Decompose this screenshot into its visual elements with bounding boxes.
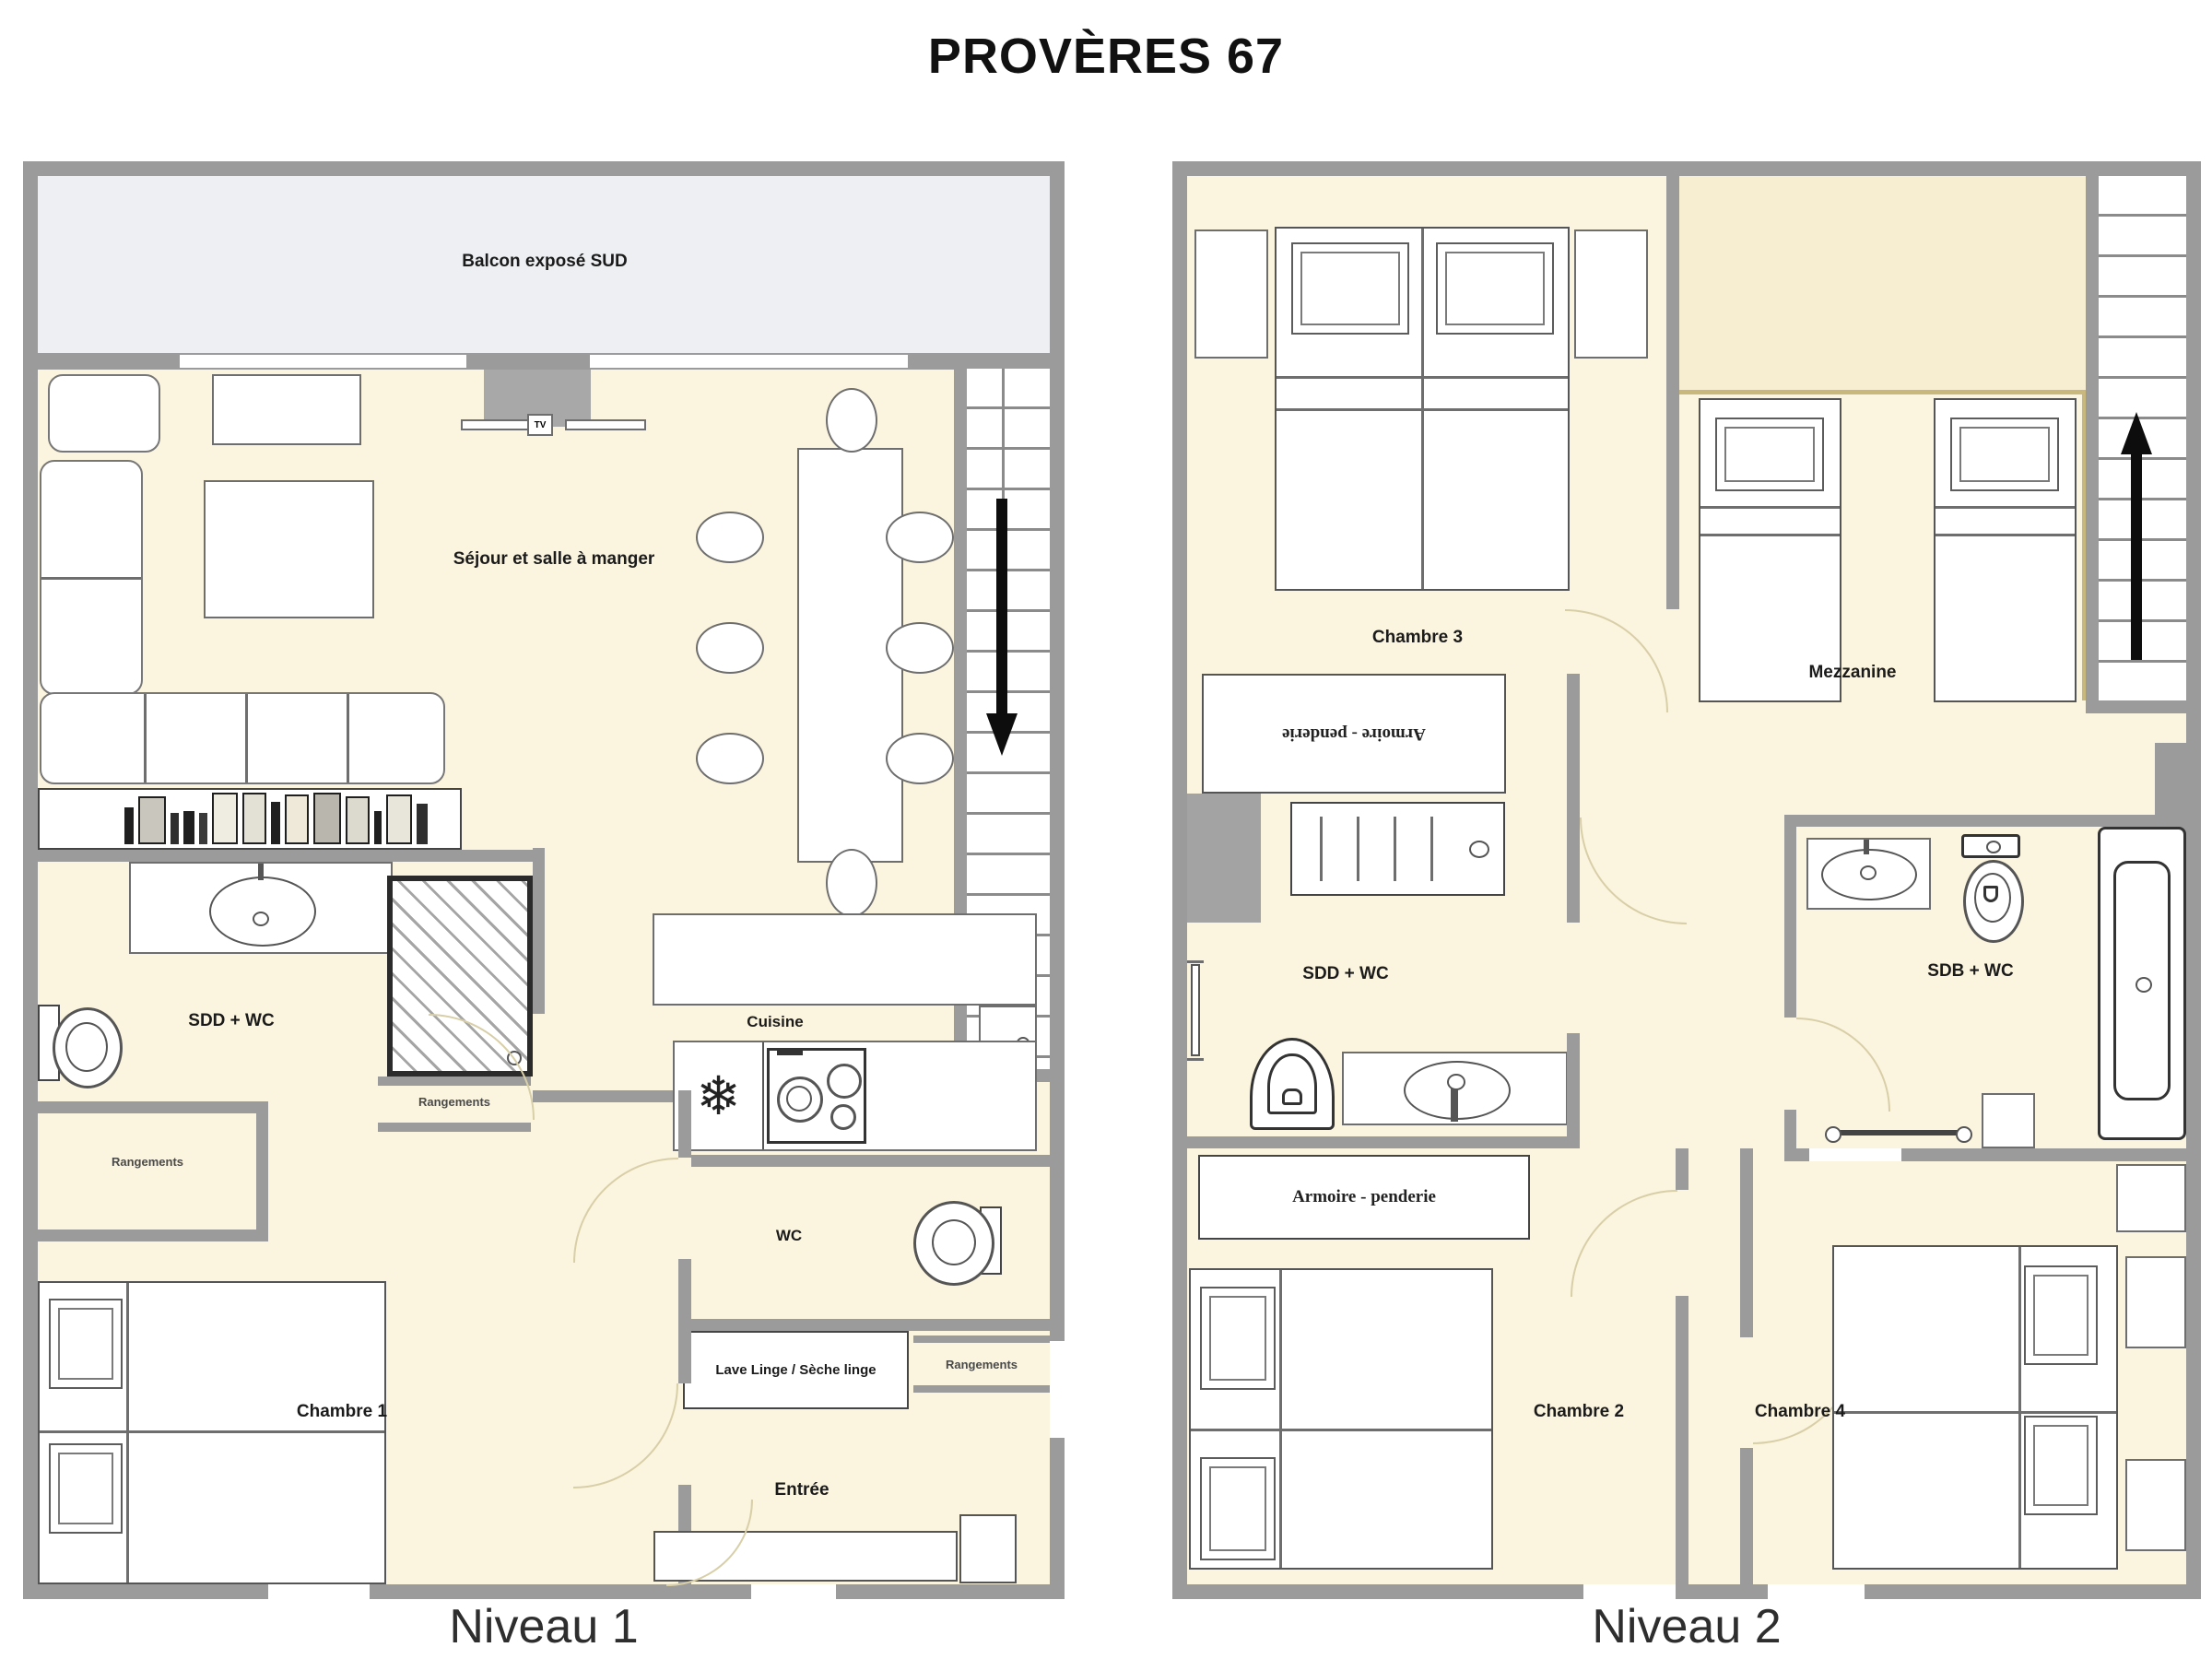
kitchen-counter: [653, 913, 1037, 1006]
sink-drain-icon: [1860, 865, 1877, 880]
sink-tap-icon: [1451, 1085, 1458, 1122]
book: [242, 793, 266, 844]
book: [212, 793, 238, 844]
entry-cabinet: [959, 1514, 1017, 1583]
book: [313, 793, 341, 844]
bed-sheet-line: [1700, 534, 1840, 536]
dining-chair: [696, 622, 764, 674]
book: [386, 794, 412, 844]
armchair: [48, 374, 160, 453]
bedroom3-wall: [1666, 176, 1679, 609]
room-wall: [1567, 1033, 1580, 1148]
page-title: PROVÈRES 67: [0, 28, 2212, 85]
storage-entry-label: Rangements: [913, 1358, 1050, 1371]
dining-chair-end: [826, 388, 877, 453]
bedroom1-label: Chambre 1: [250, 1402, 434, 1423]
sdb-label: SDB + WC: [1878, 961, 2063, 982]
sdb-left-wall: [1784, 827, 1796, 1018]
shelf-unit: [2116, 1164, 2186, 1232]
hall-wall: [533, 1090, 691, 1102]
bed-sheet-line: [1935, 534, 2075, 536]
book: [374, 811, 382, 844]
bathroom-top-wall: [38, 850, 543, 862]
tv-icon: TV: [527, 414, 553, 436]
bedside-unit: [1574, 229, 1648, 359]
sofa-cushion-divider: [41, 577, 141, 580]
towel-rail-icon: [1832, 1130, 1961, 1135]
wc-bottom-wall: [691, 1319, 1050, 1331]
stove-icon: [767, 1048, 866, 1144]
book: [271, 802, 280, 844]
toilet-button: [1986, 841, 2001, 853]
storage-wall: [38, 1101, 268, 1113]
mezzanine-edge: [1679, 390, 2086, 394]
window-bay-left: [180, 355, 466, 368]
radiator-icon: [1191, 964, 1200, 1056]
wc-top-wall: [691, 1155, 1050, 1167]
niche-wall: [378, 1123, 531, 1132]
bathroom-label: SDD + WC: [139, 1011, 324, 1032]
bedroom3-label: Chambre 3: [1325, 628, 1510, 649]
niche-wall: [913, 1385, 1050, 1393]
bedroom4-label: Chambre 4: [1726, 1402, 1874, 1423]
shower-line: [1320, 817, 1323, 881]
burner-icon: [830, 1104, 856, 1130]
bed-sheet-line: [1935, 506, 2075, 509]
door-gap: [1768, 1584, 1865, 1599]
kitchen-appliance-counter: ❄: [673, 1041, 1037, 1151]
niveau1-caption: Niveau 1: [23, 1599, 1065, 1654]
bedside-unit: [1194, 229, 1268, 359]
corridor-wall: [1676, 1296, 1688, 1584]
shower-drain-icon: [1469, 841, 1489, 858]
sink-tap-icon: [1864, 840, 1869, 854]
dining-chair-end: [826, 849, 877, 917]
book: [346, 796, 370, 844]
window-bay-right: [590, 355, 908, 368]
bedside-unit: [2125, 1256, 2186, 1348]
rail-end: [1956, 1126, 1972, 1143]
pillow-icon: [1436, 242, 1554, 335]
pillow-icon: [1200, 1287, 1276, 1390]
stove-panel: [777, 1048, 803, 1055]
kitchen-label: Cuisine: [683, 1013, 867, 1031]
radiator-cap: [1187, 960, 1204, 963]
bathroom-vanity: [1806, 838, 1931, 910]
toilet-inner: [1267, 1053, 1317, 1114]
book: [183, 811, 194, 844]
door-gap: [1809, 1148, 1901, 1161]
pillow-icon: [1200, 1457, 1276, 1560]
dining-chair: [886, 622, 954, 674]
bed-line: [1279, 1270, 1282, 1568]
room-wall: [1187, 1136, 1580, 1148]
plan-niveau-2: Chambre 3 Armoire - penderie SDD + WC: [1172, 161, 2201, 1599]
pillow-icon: [2024, 1416, 2098, 1515]
window-gap: [268, 1584, 370, 1599]
mezzanine-label: Mezzanine: [1760, 663, 1945, 684]
plan-niveau-1: Balcon exposé SUD TV Séjour et salle à m…: [23, 161, 1065, 1599]
pillow-icon: [49, 1299, 123, 1389]
burner-icon: [786, 1086, 812, 1112]
mezzanine-upper-floor: [1679, 176, 2086, 394]
wardrobe-upper-label: Armoire - penderie: [1202, 674, 1506, 794]
bed-split: [40, 1430, 384, 1433]
sofa-cushion-divider: [347, 694, 349, 782]
toilet-flush: [1282, 1088, 1302, 1105]
storage-wall: [38, 1230, 268, 1241]
bed-sheet-line: [1277, 408, 1568, 411]
pillow-icon: [1715, 418, 1824, 491]
toilet-icon: [1250, 1038, 1335, 1130]
door-arc: [1796, 1018, 1890, 1112]
bathroom-vanity: [129, 862, 393, 954]
floorplan-canvas: PROVÈRES 67 Balcon exposé SUD TV Séjour …: [0, 0, 2212, 1659]
bookshelf: [38, 788, 462, 850]
bathtub-icon: [2098, 827, 2186, 1140]
sofa-bottom-section: [40, 692, 445, 784]
book: [417, 804, 428, 844]
book: [124, 807, 134, 844]
coffee-table: [204, 480, 374, 618]
front-door-gap: [751, 1584, 836, 1599]
dining-chair: [886, 512, 954, 563]
pillow-icon: [1950, 418, 2059, 491]
sink-drain-icon: [1447, 1074, 1465, 1090]
door-arc: [573, 1158, 678, 1263]
stairs-down-arrowhead: [986, 713, 1018, 756]
dining-chair: [696, 733, 764, 784]
sofa-cushion-divider: [245, 694, 248, 782]
shower-line: [1430, 817, 1433, 881]
sdb-top-wall: [1784, 815, 2186, 827]
tv-stand-right: [565, 419, 646, 430]
console-table: [212, 374, 361, 445]
toilet-tank-icon: [1961, 834, 2020, 858]
book: [285, 794, 309, 844]
corridor-wall: [678, 1090, 691, 1158]
book: [199, 813, 207, 844]
stairs-down-arrow: [996, 499, 1007, 715]
pillow-icon: [49, 1443, 123, 1534]
dining-chair: [696, 512, 764, 563]
shower-tray: [1290, 802, 1505, 896]
bed-sheet-line: [1700, 506, 1840, 509]
storage-wall: [256, 1101, 268, 1241]
door-arc: [1571, 1190, 1677, 1297]
bed-split: [1834, 1411, 2116, 1414]
bathtub-drain-icon: [2136, 977, 2152, 993]
storage-left-label: Rangements: [45, 1155, 250, 1169]
toilet-flush: [1983, 886, 1998, 902]
rail-end: [1825, 1126, 1841, 1143]
corridor-wall: [1740, 1448, 1753, 1584]
shower-room-label: SDD + WC: [1253, 964, 1438, 985]
niche-wall: [913, 1335, 1050, 1343]
door-arc: [1580, 818, 1687, 924]
wall-block: [1187, 794, 1261, 923]
book: [138, 796, 166, 844]
stairs-up-arrow: [2131, 453, 2142, 660]
radiator-cap: [1187, 1058, 1204, 1061]
pillow-icon: [1291, 242, 1409, 335]
balcony-label: Balcon exposé SUD: [360, 252, 729, 273]
bed-split: [1191, 1429, 1491, 1431]
door-gap: [1583, 1584, 1676, 1599]
niveau2-caption: Niveau 2: [1172, 1599, 2201, 1654]
wc-toilet-bowl-inner: [932, 1219, 976, 1265]
shower-line: [1357, 817, 1359, 881]
laundry-label: Lave Linge / Sèche linge: [715, 1362, 876, 1378]
laundry-box: Lave Linge / Sèche linge: [683, 1331, 909, 1409]
shower-line: [1394, 817, 1396, 881]
stair-wall: [2086, 700, 2186, 713]
burner-icon: [827, 1064, 862, 1099]
bedside-unit: [2125, 1459, 2186, 1551]
door-arc: [1565, 609, 1668, 712]
toilet-bowl-inner: [65, 1022, 108, 1072]
living-room-label: Séjour et salle à manger: [370, 549, 738, 571]
wc-label: WC: [738, 1227, 840, 1245]
bed-line: [2018, 1247, 2021, 1568]
mezzanine-rail: [2082, 390, 2086, 700]
side-door-gap: [1050, 1341, 1065, 1438]
wardrobe-lower-label: Armoire - penderie: [1198, 1155, 1530, 1240]
corridor-wall: [678, 1259, 691, 1383]
sofa-cushion-divider: [144, 694, 147, 782]
corridor-wall: [1740, 1148, 1753, 1337]
corridor-wall: [1676, 1148, 1688, 1190]
dining-chair: [886, 733, 954, 784]
pillow-icon: [2024, 1265, 2098, 1365]
entry-label: Entrée: [710, 1480, 894, 1501]
book: [171, 813, 179, 844]
bedroom2-label: Chambre 2: [1491, 1402, 1666, 1423]
door-arc: [573, 1383, 678, 1488]
room-wall: [1567, 674, 1580, 923]
sink-drain-icon: [253, 912, 269, 926]
sink-tap-icon: [258, 864, 264, 880]
sdb-left-wall: [1784, 1110, 1796, 1148]
bed-sheet-line: [1277, 376, 1568, 379]
bathroom-vanity: [1342, 1052, 1568, 1125]
bathroom-bin: [1982, 1093, 2035, 1148]
stairs-up-arrowhead: [2121, 412, 2152, 454]
bathroom-right-wall: [533, 848, 545, 1014]
